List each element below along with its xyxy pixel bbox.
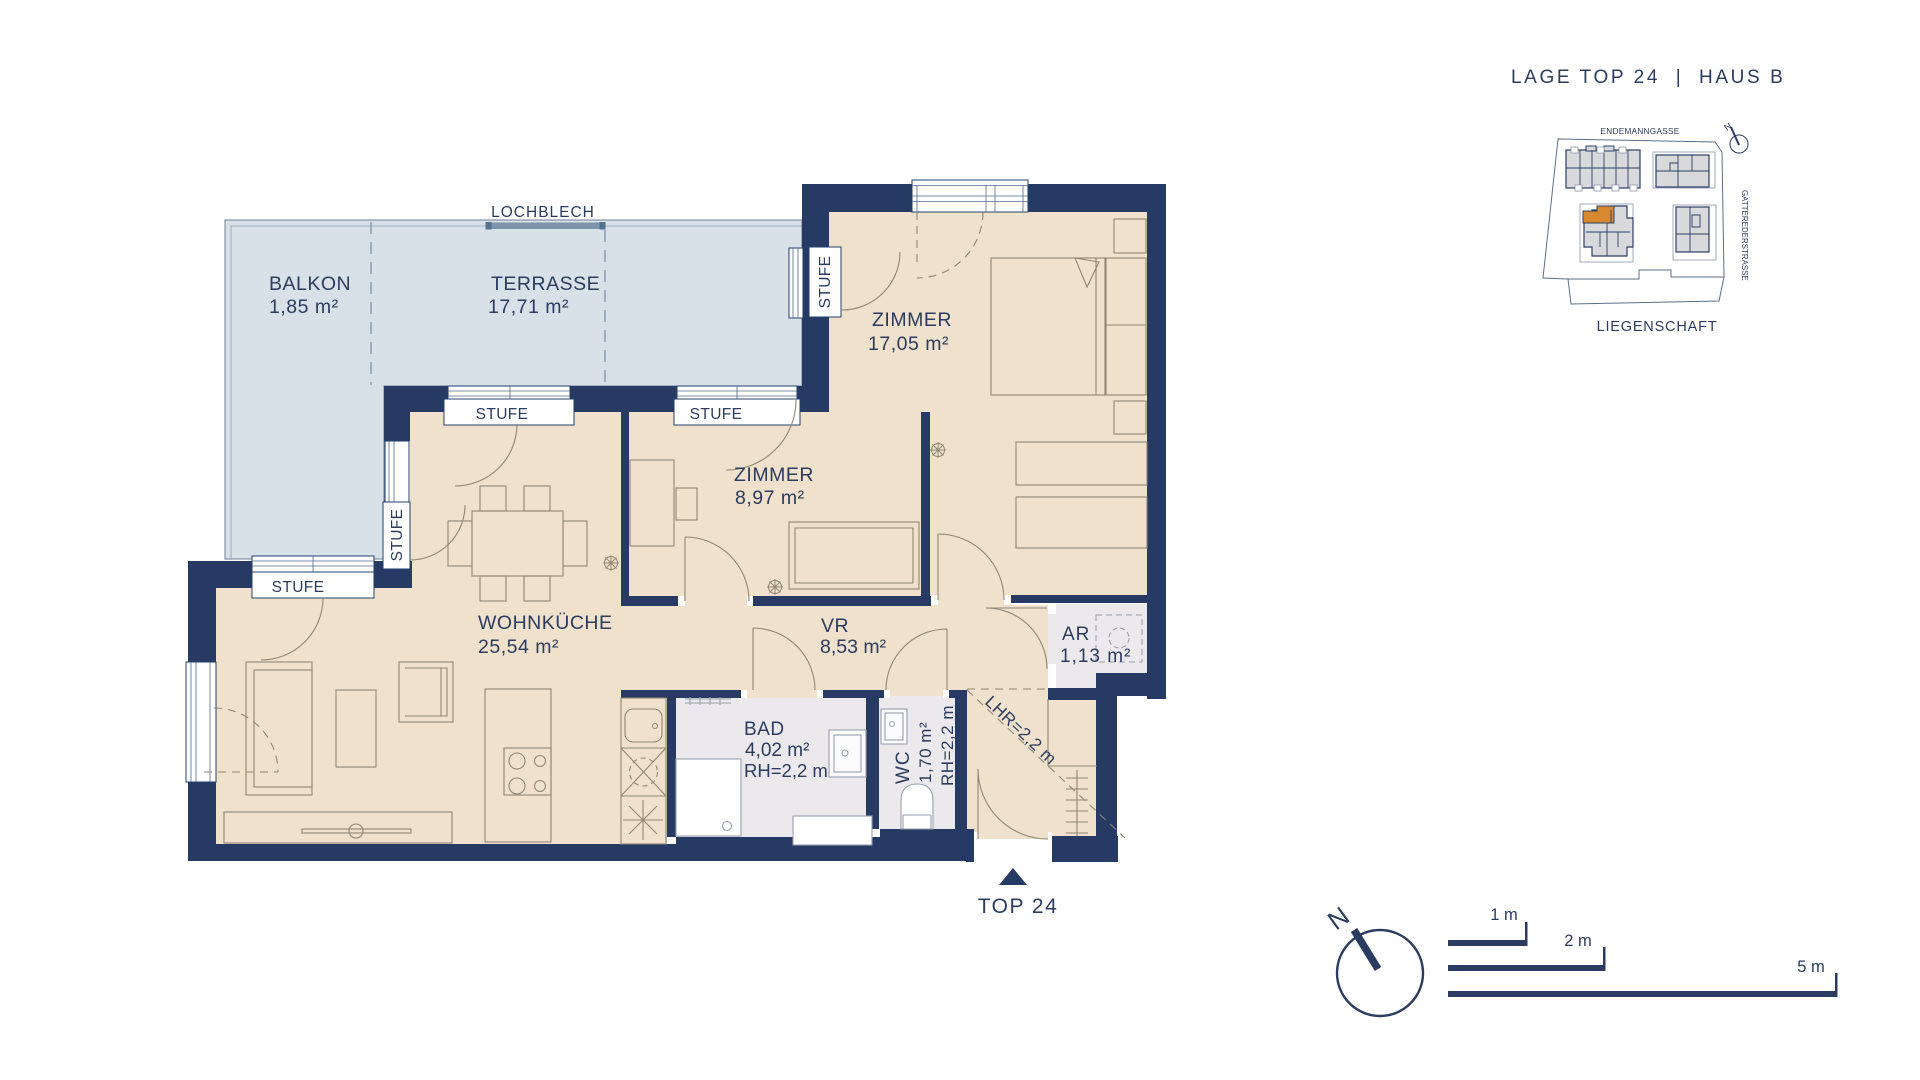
svg-text:1 m: 1 m — [1490, 906, 1518, 924]
svg-text:LOCHBLECH: LOCHBLECH — [491, 204, 595, 221]
svg-text:STUFE: STUFE — [690, 406, 743, 423]
svg-text:LAGE TOP 24 | HAUS B: LAGE TOP 24 | HAUS B — [1511, 67, 1785, 88]
svg-text:1,13 m²: 1,13 m² — [1060, 646, 1131, 667]
svg-text:8,97 m²: 8,97 m² — [735, 487, 805, 509]
svg-text:2 m: 2 m — [1564, 932, 1592, 950]
svg-text:TOP 24: TOP 24 — [978, 895, 1059, 918]
svg-text:ZIMMER: ZIMMER — [734, 464, 814, 486]
svg-text:RH=2,2 m: RH=2,2 m — [938, 705, 957, 786]
svg-text:4,02 m²: 4,02 m² — [745, 740, 809, 761]
svg-text:8,53 m²: 8,53 m² — [820, 636, 887, 658]
svg-text:BAD: BAD — [744, 719, 785, 740]
svg-text:GATTEREDERSTRASSE: GATTEREDERSTRASSE — [1740, 190, 1749, 281]
svg-text:1,85 m²: 1,85 m² — [269, 296, 339, 318]
svg-text:LIEGENSCHAFT: LIEGENSCHAFT — [1597, 319, 1718, 335]
svg-text:STUFE: STUFE — [389, 509, 406, 562]
svg-text:WC: WC — [893, 750, 914, 784]
svg-text:1,70 m²: 1,70 m² — [916, 722, 935, 783]
svg-text:17,05 m²: 17,05 m² — [868, 333, 949, 355]
svg-text:RH=2,2 m: RH=2,2 m — [744, 760, 828, 781]
svg-text:17,71 m²: 17,71 m² — [488, 296, 569, 318]
svg-text:BALKON: BALKON — [269, 273, 351, 295]
svg-text:STUFE: STUFE — [272, 579, 325, 596]
svg-text:25,54 m²: 25,54 m² — [478, 636, 559, 658]
svg-text:STUFE: STUFE — [476, 406, 529, 423]
svg-text:STUFE: STUFE — [817, 256, 834, 309]
svg-text:WOHNKÜCHE: WOHNKÜCHE — [478, 612, 613, 634]
svg-text:5 m: 5 m — [1797, 958, 1825, 976]
svg-text:AR: AR — [1062, 624, 1090, 645]
svg-text:VR: VR — [821, 615, 849, 637]
svg-text:ZIMMER: ZIMMER — [872, 309, 952, 331]
svg-text:ENDEMANNGASSE: ENDEMANNGASSE — [1601, 127, 1680, 136]
svg-text:TERRASSE: TERRASSE — [491, 273, 600, 295]
